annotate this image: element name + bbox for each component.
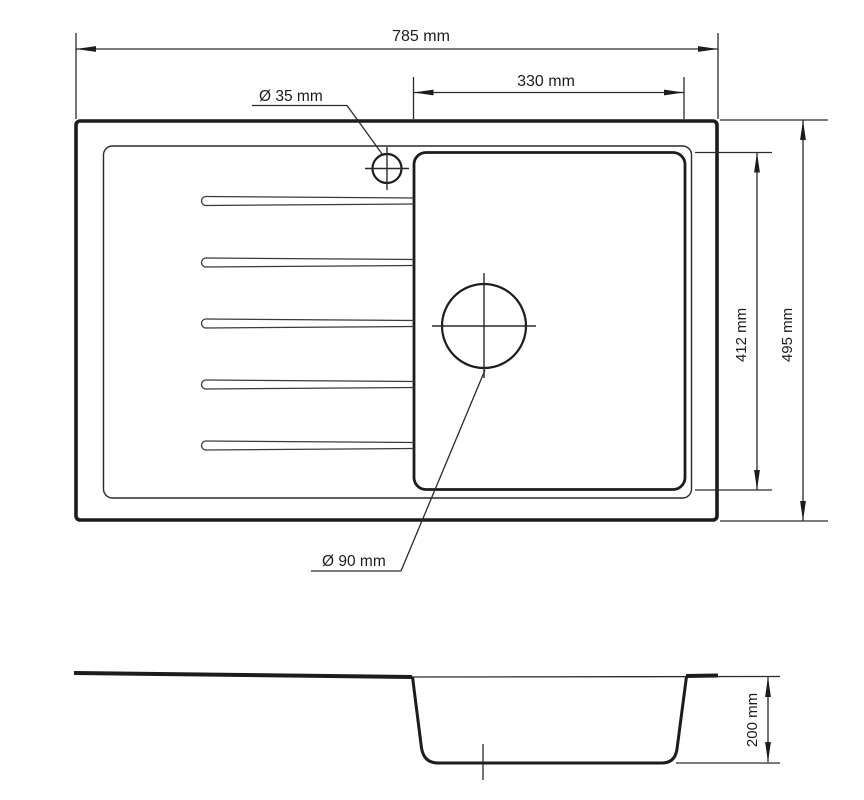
section-right-ledge: [686, 676, 718, 677]
sink-inner-rim: [104, 146, 692, 498]
dim-label-overall-length: 495 mm: [779, 308, 796, 362]
dimension-bowl-width: 330 mm: [414, 73, 685, 119]
section-top-surface: [74, 673, 412, 677]
dim-label-overall-width: 785 mm: [392, 28, 450, 45]
top-view: [76, 121, 717, 520]
dim-label-bowl-width: 330 mm: [517, 73, 575, 90]
section-view: [74, 673, 780, 780]
groove: [202, 441, 415, 450]
drawing-svg: 785 mm 330 mm 412 mm 495 mm Ø 35 mm Ø 90…: [0, 0, 864, 800]
section-rim-line: [412, 677, 780, 678]
callout-drain: Ø 90 mm: [311, 370, 485, 571]
dim-label-bowl-depth: 200 mm: [744, 693, 761, 747]
groove: [202, 258, 415, 267]
dimension-bowl-length: 412 mm: [695, 153, 772, 491]
groove: [202, 380, 415, 389]
leader-line: [347, 106, 383, 155]
section-bowl-profile: [413, 677, 687, 764]
label-drain-diameter: Ø 90 mm: [322, 553, 386, 570]
bowl-outline: [414, 153, 685, 490]
dimension-bowl-depth: 200 mm: [676, 677, 780, 763]
dim-label-bowl-length: 412 mm: [733, 308, 750, 362]
sink-technical-drawing: 785 mm 330 mm 412 mm 495 mm Ø 35 mm Ø 90…: [0, 0, 864, 800]
drain-hole: [432, 273, 536, 378]
dimension-overall-width: 785 mm: [76, 28, 718, 119]
label-tap-hole-diameter: Ø 35 mm: [259, 88, 323, 105]
groove: [202, 197, 415, 206]
groove: [202, 319, 415, 328]
tap-hole: [365, 147, 409, 190]
drainboard-grooves: [202, 197, 415, 451]
